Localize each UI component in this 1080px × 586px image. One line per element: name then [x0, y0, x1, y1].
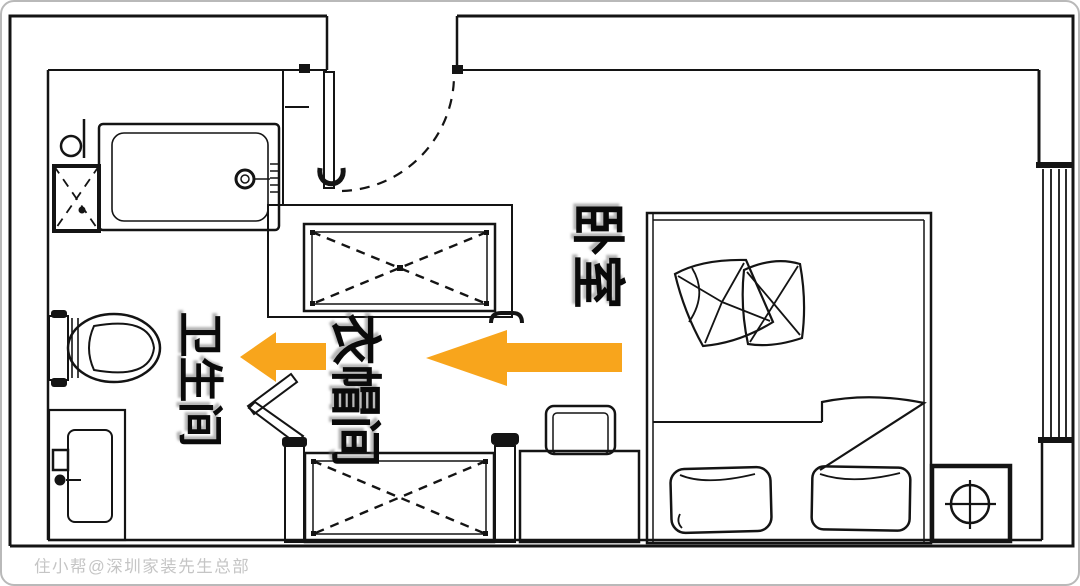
washbasin-icon [49, 410, 125, 540]
pillows-icon [670, 466, 910, 533]
floor-drain-icon [54, 166, 99, 231]
window [1043, 169, 1066, 438]
blanket-fold [820, 397, 924, 470]
bathtub-icon [99, 124, 279, 230]
door-swing-arc [342, 73, 454, 191]
lower-wardrobe-icon [282, 433, 519, 542]
chair-icon [546, 406, 615, 454]
bathroom-label: 卫生间 [177, 312, 223, 447]
flow-arrows [240, 330, 622, 386]
walls [10, 16, 1073, 546]
cloakroom-label: 衣帽间 [328, 313, 380, 466]
upper-wardrobe-icon [268, 205, 522, 323]
throw-pillows-icon [675, 260, 804, 346]
watermark-text: 住小帮@深圳家装先生总部 [34, 553, 250, 577]
flow-arrow-short [240, 332, 326, 382]
toilet-icon [49, 310, 160, 387]
nightstand-icon [932, 466, 1010, 541]
floor-plan-drawing [2, 2, 1080, 586]
entry-door [320, 72, 454, 191]
towel-hook-icon [61, 119, 84, 158]
bifold-door-icon [248, 374, 303, 444]
floor-plan-image: 卧室 衣帽间 卫生间 住小帮@深圳家装先生总部 [0, 0, 1080, 586]
flow-arrow-long [426, 330, 622, 386]
bedroom-label: 卧室 [570, 202, 624, 308]
desk-icon [520, 451, 639, 542]
